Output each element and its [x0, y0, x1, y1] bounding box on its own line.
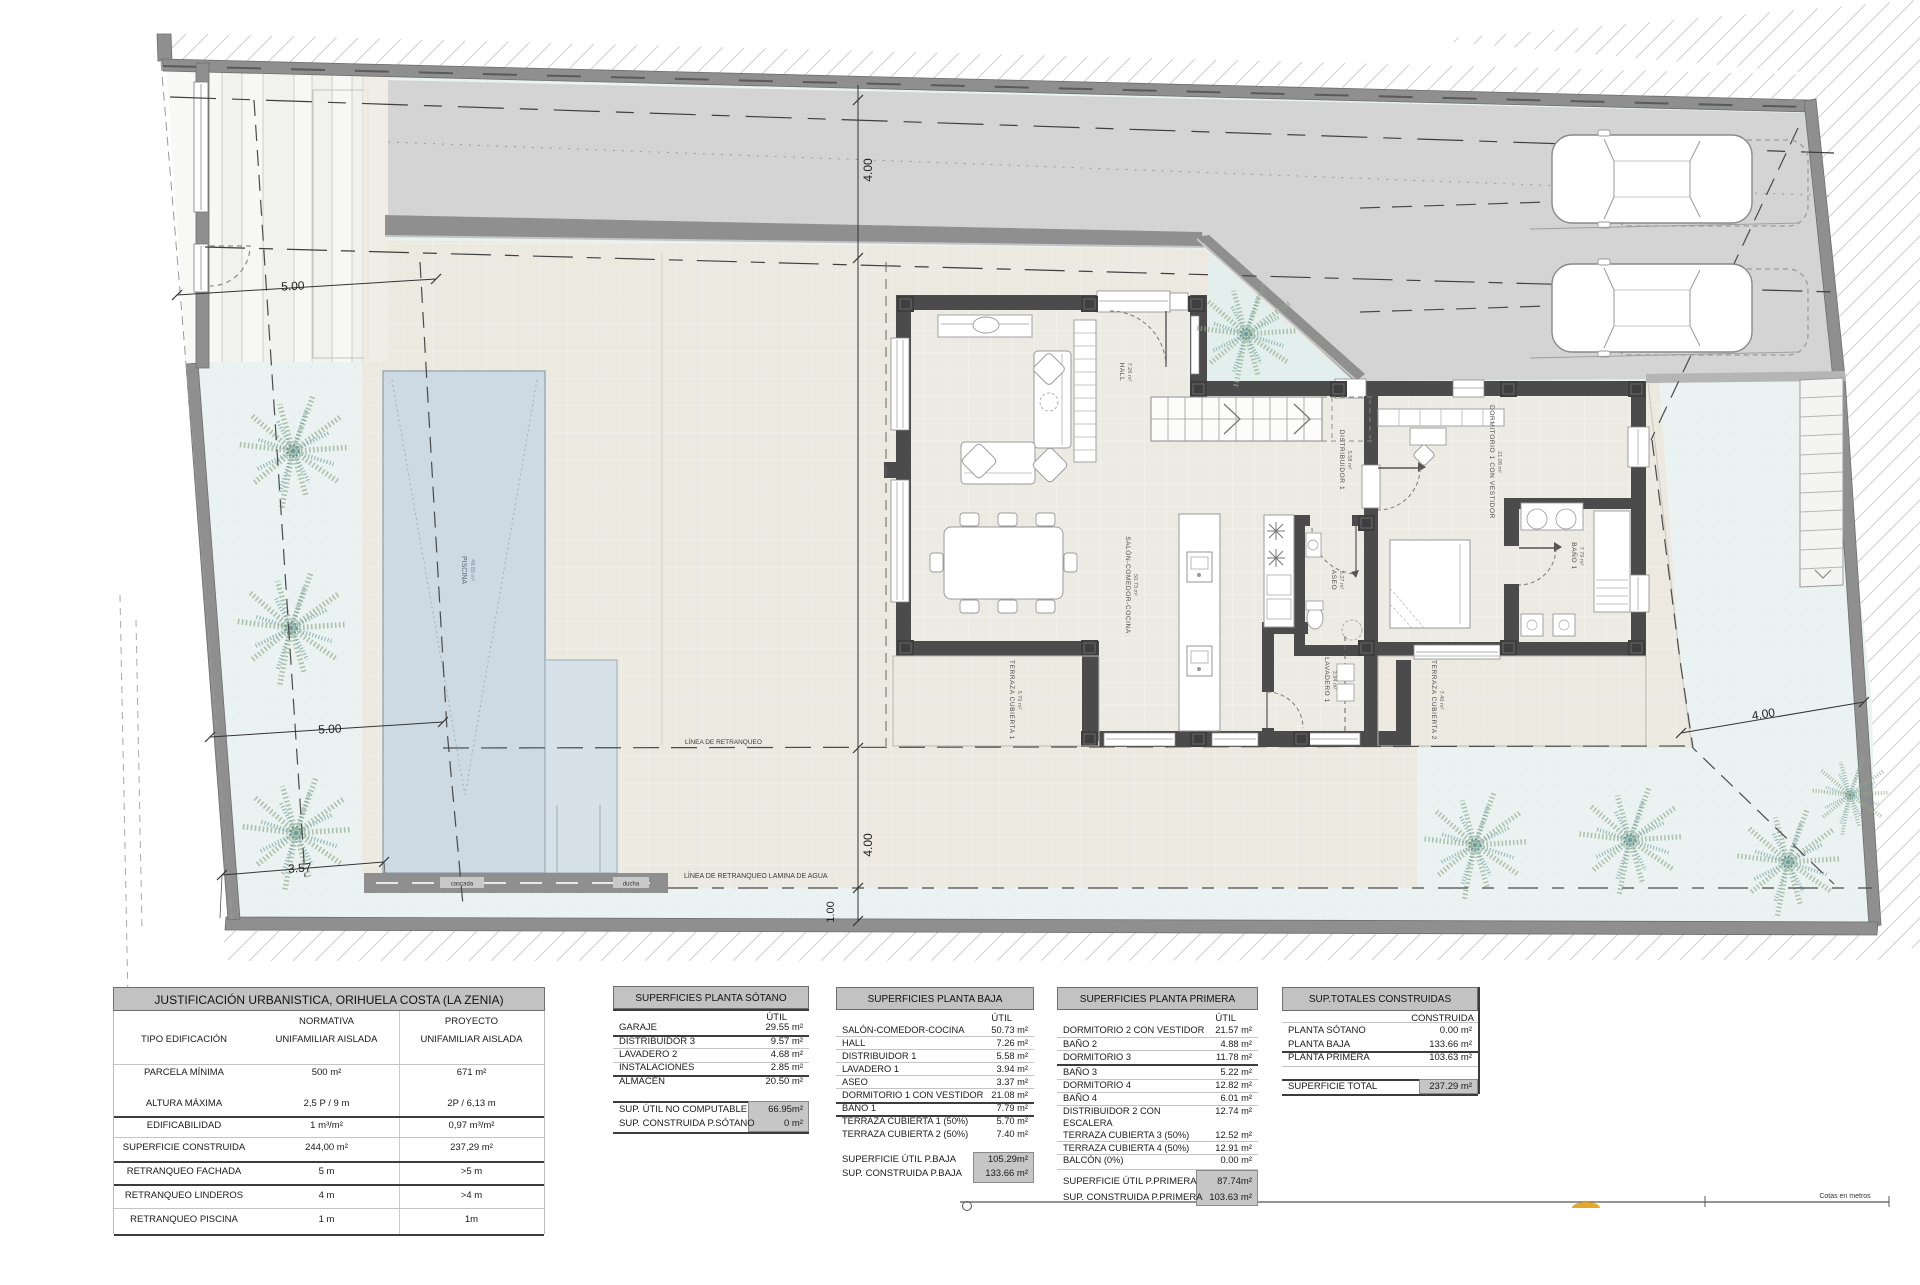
svg-text:4.00: 4.00 [861, 833, 875, 857]
svg-text:5.70 m²: 5.70 m² [1016, 691, 1022, 710]
svg-text:ASEO: ASEO [1330, 570, 1337, 590]
svg-text:HALL: HALL [1118, 363, 1125, 382]
svg-text:Cotas en metros: Cotas en metros [1819, 1193, 1871, 1200]
svg-text:21.08 m²: 21.08 m² [1496, 451, 1502, 473]
svg-text:5.00: 5.00 [281, 278, 305, 293]
svg-text:ducha: ducha [623, 882, 640, 888]
svg-text:3.37 m²: 3.37 m² [1338, 571, 1344, 590]
svg-text:TERRAZA CUBIERTA 1: TERRAZA CUBIERTA 1 [1008, 660, 1015, 740]
svg-text:LAVADERO 1: LAVADERO 1 [1323, 657, 1330, 703]
svg-text:DISTRIBUIDOR 1: DISTRIBUIDOR 1 [1338, 430, 1345, 490]
svg-text:cascada: cascada [451, 882, 474, 888]
svg-text:DORMITORIO 1 CON VESTIDOR: DORMITORIO 1 CON VESTIDOR [1488, 405, 1495, 519]
svg-text:1.00: 1.00 [825, 901, 837, 922]
svg-text:PISCINA: PISCINA [460, 556, 467, 584]
svg-text:7.40 m²: 7.40 m² [1438, 691, 1444, 710]
svg-text:7.26 m²: 7.26 m² [1126, 363, 1132, 382]
svg-text:48.85 m²: 48.85 m² [469, 559, 475, 581]
svg-text:7.79 m²: 7.79 m² [1578, 547, 1584, 566]
svg-text:50.73 m²: 50.73 m² [1132, 574, 1138, 596]
svg-text:3.94 m²: 3.94 m² [1331, 671, 1337, 690]
svg-text:TERRAZA CUBIERTA 2: TERRAZA CUBIERTA 2 [1430, 660, 1437, 740]
svg-text:5.00: 5.00 [318, 721, 342, 736]
svg-text:SALÓN-COMEDOR-COCINA: SALÓN-COMEDOR-COCINA [1124, 536, 1133, 634]
svg-text:BAÑO 1: BAÑO 1 [1570, 542, 1579, 569]
svg-text:3.57: 3.57 [288, 860, 313, 876]
svg-text:LÍNEA DE RETRANQUEO LAMINA DE: LÍNEA DE RETRANQUEO LAMINA DE AGUA [684, 871, 828, 880]
svg-text:4.00: 4.00 [861, 158, 875, 182]
svg-text:LÍNEA DE RETRANQUEO: LÍNEA DE RETRANQUEO [685, 737, 762, 746]
svg-text:5.58 m²: 5.58 m² [1346, 451, 1352, 470]
